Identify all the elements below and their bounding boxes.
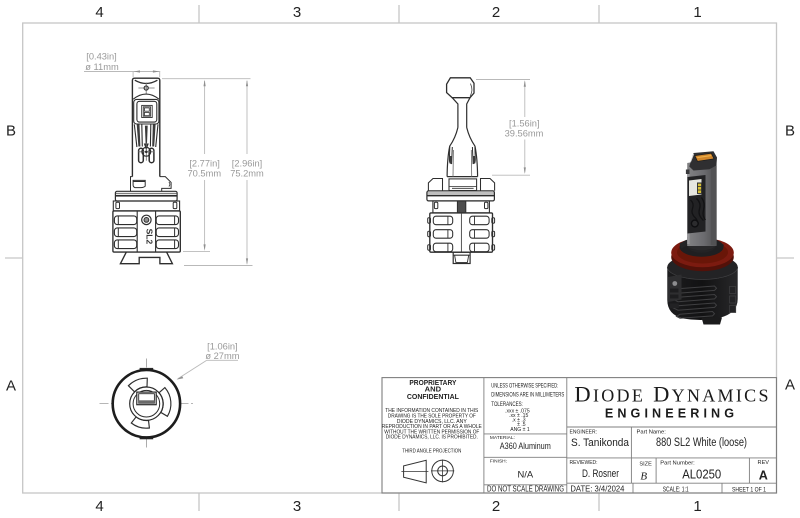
svg-text:1: 1 — [693, 4, 701, 21]
svg-text:N/A: N/A — [517, 469, 533, 480]
svg-text:[2.96in]: [2.96in] — [232, 158, 263, 168]
svg-text:[1.56in]: [1.56in] — [509, 119, 540, 129]
svg-text:TOLERANCES:: TOLERANCES: — [491, 402, 523, 408]
svg-text:FINISH:: FINISH: — [490, 459, 507, 465]
svg-text:THIRD ANGLE PROJECTION: THIRD ANGLE PROJECTION — [402, 449, 461, 455]
svg-text:ANG ± 1: ANG ± 1 — [510, 427, 530, 433]
svg-text:DIODE DYNAMICS: DIODE DYNAMICS — [574, 381, 770, 406]
svg-text:AL0250: AL0250 — [682, 468, 721, 482]
svg-text:4: 4 — [95, 4, 103, 21]
svg-text:S. Tanikonda: S. Tanikonda — [571, 437, 630, 449]
svg-text:4: 4 — [95, 498, 103, 515]
svg-text:REV: REV — [758, 460, 770, 466]
svg-text:SL2: SL2 — [145, 229, 155, 245]
svg-text:ENGINEERING: ENGINEERING — [605, 406, 738, 420]
svg-text:75.2mm: 75.2mm — [230, 169, 264, 179]
svg-text:70.5mm: 70.5mm — [188, 169, 222, 179]
svg-text:ø 27mm: ø 27mm — [205, 351, 239, 361]
svg-text:3: 3 — [293, 4, 301, 21]
svg-text:3: 3 — [293, 498, 301, 515]
svg-text:CONFIDENTIAL: CONFIDENTIAL — [407, 392, 459, 401]
svg-text:A: A — [6, 378, 16, 395]
svg-text:[0.43in]: [0.43in] — [86, 52, 117, 62]
svg-text:B: B — [640, 471, 647, 483]
svg-text:DATE: 3/4/2024: DATE: 3/4/2024 — [570, 485, 625, 494]
svg-text:ø 11mm: ø 11mm — [85, 62, 119, 72]
svg-text:880 SL2 White (loose): 880 SL2 White (loose) — [656, 435, 747, 449]
svg-text:SCALE: 1:1: SCALE: 1:1 — [663, 487, 689, 494]
svg-text:DIMENSIONS ARE IN MILLIMETERS: DIMENSIONS ARE IN MILLIMETERS — [491, 393, 564, 399]
svg-text:2: 2 — [492, 4, 500, 21]
svg-text:Part Number:: Part Number: — [660, 461, 695, 467]
svg-text:ENGINEER:: ENGINEER: — [570, 429, 598, 435]
svg-text:SIZE: SIZE — [639, 461, 652, 467]
svg-text:DIODE DYNAMICS, LLC. IS PROHIB: DIODE DYNAMICS, LLC. IS PROHIBITED. — [386, 435, 478, 441]
svg-text:B: B — [785, 123, 795, 140]
svg-text:[1.06in]: [1.06in] — [207, 341, 238, 351]
svg-text:[2.77in]: [2.77in] — [189, 158, 220, 168]
svg-text:A360 Aluminum: A360 Aluminum — [500, 440, 551, 451]
svg-text:REVIEWED:: REVIEWED: — [570, 460, 598, 466]
svg-text:2: 2 — [492, 498, 500, 515]
svg-text:A: A — [759, 468, 768, 482]
svg-text:B: B — [6, 123, 16, 140]
svg-text:DO NOT SCALE DRAWING: DO NOT SCALE DRAWING — [487, 485, 564, 494]
svg-text:39.56mm: 39.56mm — [505, 129, 544, 139]
svg-text:1: 1 — [693, 498, 701, 515]
svg-text:SHEET 1 OF 1: SHEET 1 OF 1 — [732, 486, 766, 493]
svg-text:D. Rosner: D. Rosner — [582, 468, 619, 480]
svg-text:UNLESS OTHERWISE SPECIFIED:: UNLESS OTHERWISE SPECIFIED: — [491, 384, 558, 390]
svg-text:A: A — [785, 377, 795, 394]
